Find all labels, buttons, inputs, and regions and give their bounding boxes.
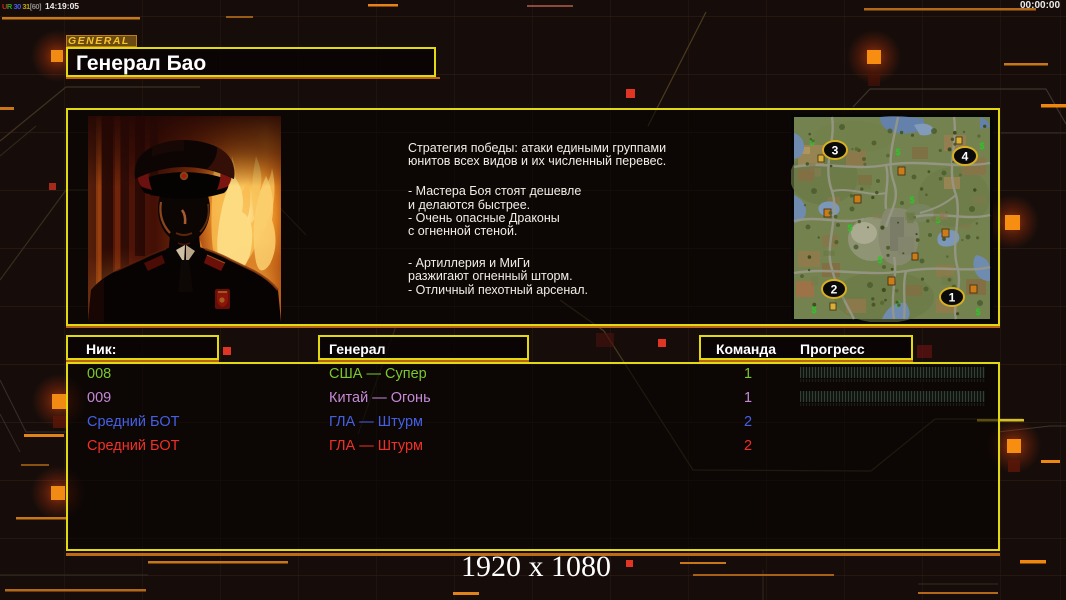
svg-text:3: 3 (832, 144, 839, 158)
svg-text:1: 1 (949, 291, 956, 305)
svg-text:4: 4 (962, 150, 969, 164)
svg-text:2: 2 (831, 283, 838, 297)
